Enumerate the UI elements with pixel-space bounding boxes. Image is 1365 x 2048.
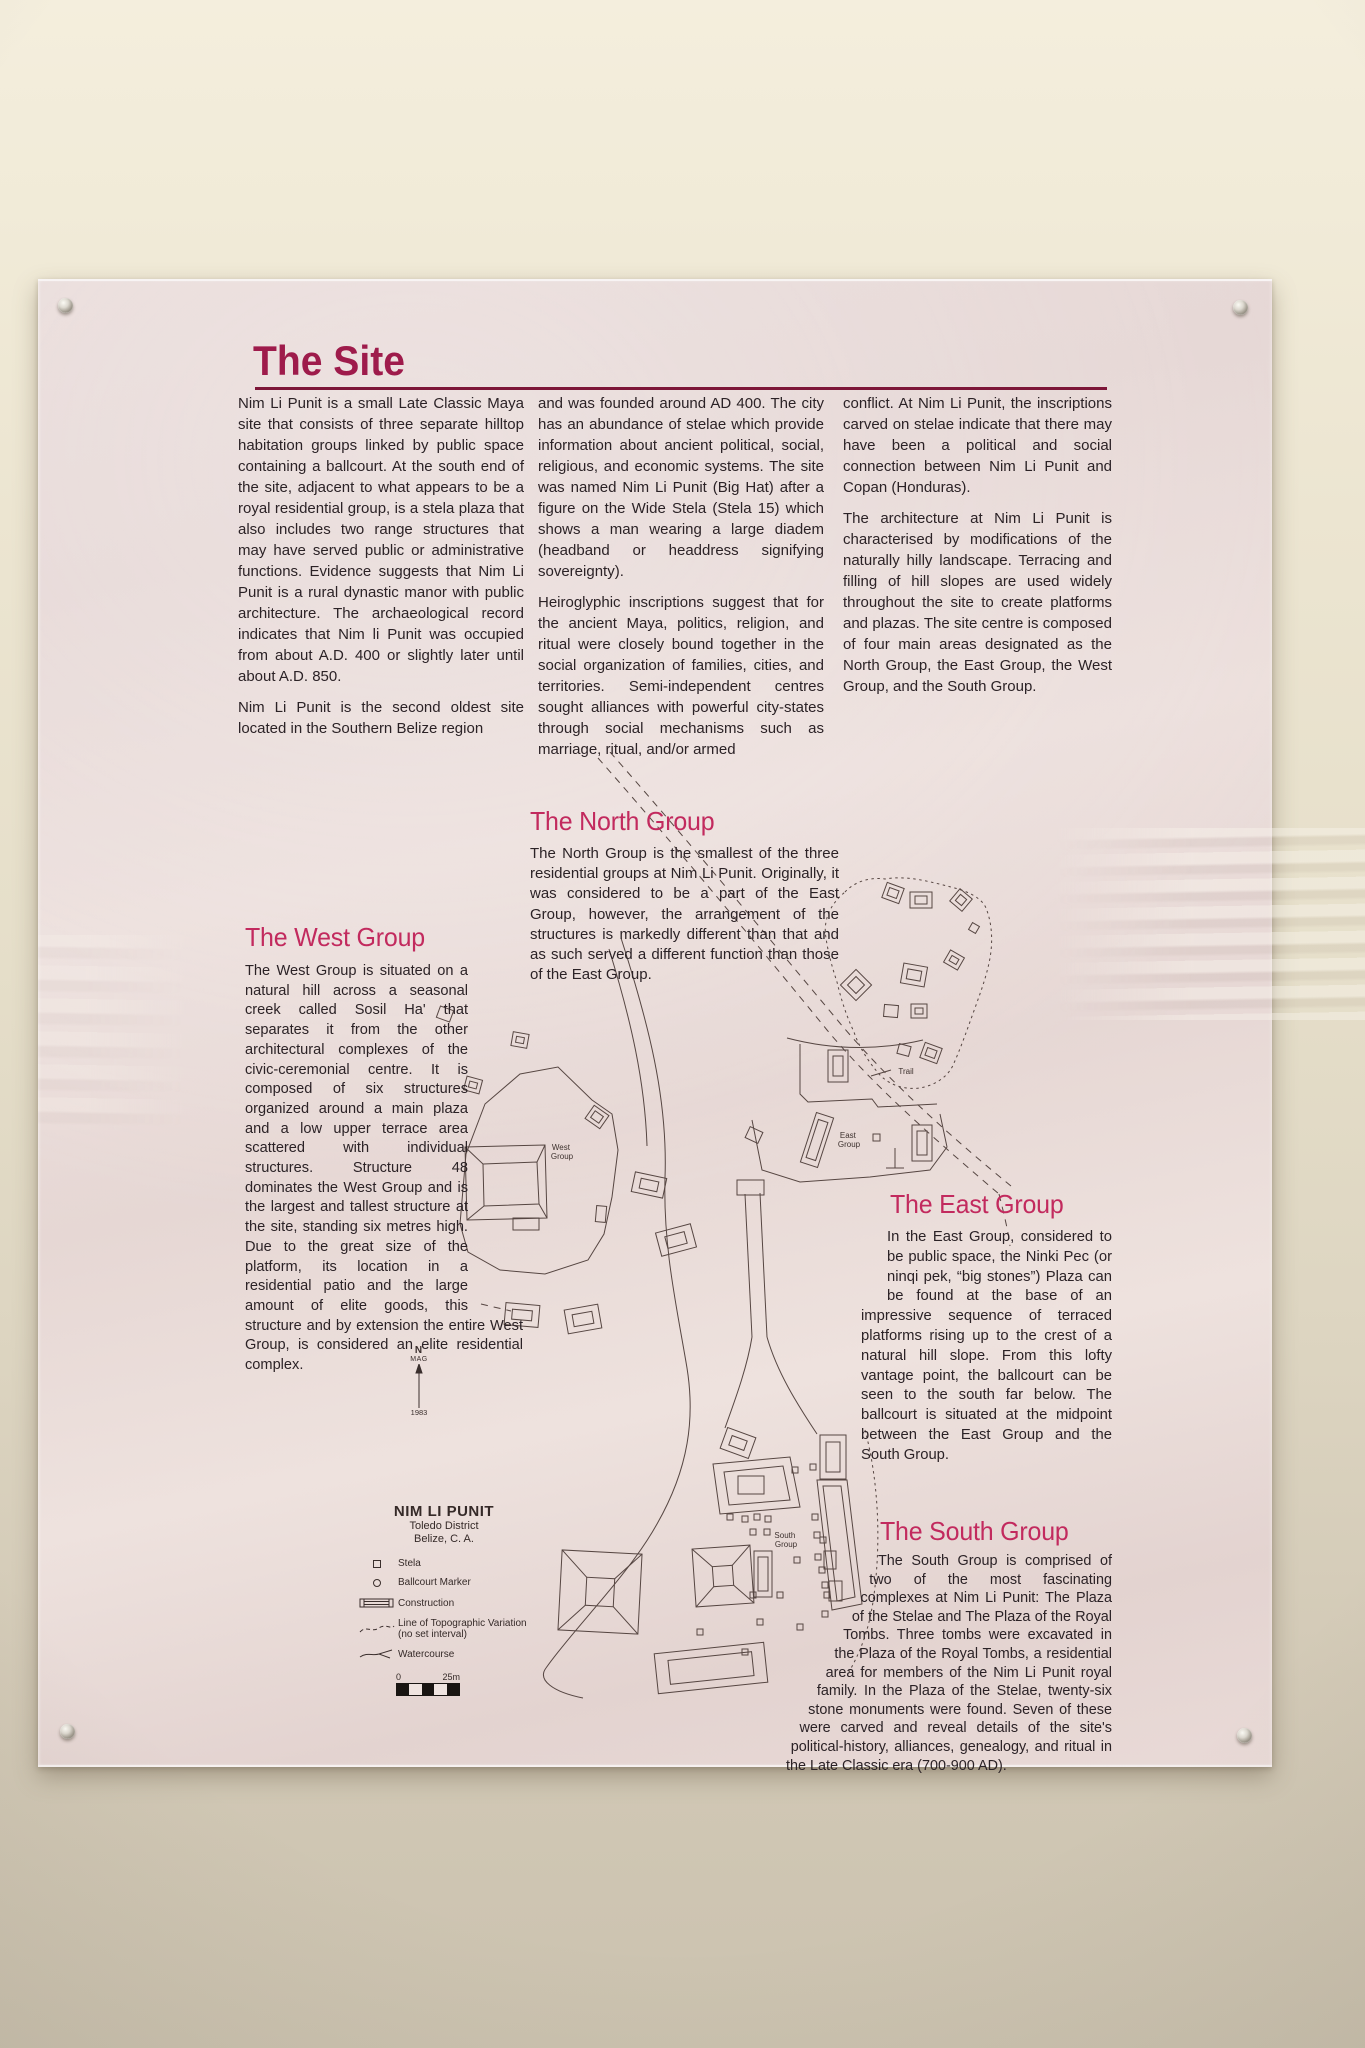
legend-row-watercourse: Watercourse: [356, 1648, 532, 1660]
legend-row-ballcourt-marker: Ballcourt Marker: [356, 1577, 532, 1588]
stela-square-icon: [356, 1559, 398, 1569]
mount-screw-bottom-right: [1237, 1728, 1252, 1743]
scale-end: 25m: [442, 1672, 460, 1682]
central-structures: [631, 1172, 696, 1256]
east-group-structures: [745, 1038, 947, 1182]
scale-bar-segments: [396, 1683, 460, 1696]
legend-label-line2: (no set interval): [398, 1629, 527, 1640]
east-group-text: In the East Group, considered to be publ…: [861, 1229, 1112, 1463]
east-group-paragraph: In the East Group, considered to be publ…: [861, 1228, 1112, 1466]
intro-col2-paragraph-1: and was founded around AD 400. The city …: [538, 393, 824, 582]
compass-year: 1983: [396, 1408, 442, 1417]
legend-items: Stela Ballcourt Marker: [356, 1558, 532, 1660]
legend-label: Construction: [398, 1598, 454, 1609]
legend-label-line1: Line of Topographic Variation: [398, 1618, 527, 1629]
intro-col1-paragraph-1: Nim Li Punit is a small Late Classic May…: [238, 393, 524, 687]
north-group-structures: [840, 882, 979, 1063]
scale-start: 0: [396, 1672, 401, 1682]
causeway-path: [725, 1180, 817, 1434]
trail-label-leader: [871, 1070, 891, 1076]
map-label-east-group: East Group: [838, 1131, 861, 1149]
legend-title: NIM LI PUNIT: [356, 1503, 532, 1520]
map-label-west-group: West Group: [551, 1143, 574, 1161]
intro-col2-paragraph-2: Heiroglyphic inscriptions suggest that f…: [538, 592, 824, 760]
compass-arrow-icon: [414, 1364, 424, 1408]
scale-numbers: 0 25m: [396, 1672, 460, 1682]
interpretive-panel: Trail: [38, 279, 1272, 1767]
legend-row-topographic-line: Line of Topographic Variation (no set in…: [356, 1618, 532, 1640]
intro-column-1: Nim Li Punit is a small Late Classic May…: [238, 393, 524, 749]
intro-col3-paragraph-2: The architecture at Nim Li Punit is char…: [843, 508, 1112, 697]
page-title: The Site: [253, 337, 405, 385]
map-compass: N MAG 1983: [396, 1345, 442, 1417]
south-group-paragraph: The South Group is comprised of two of t…: [786, 1552, 1112, 1775]
legend-row-construction: Construction: [356, 1596, 532, 1610]
intro-col1-paragraph-2: Nim Li Punit is the second oldest site l…: [238, 697, 524, 739]
legend-label: Stela: [398, 1558, 421, 1569]
legend-row-stela: Stela: [356, 1558, 532, 1569]
intro-column-3: conflict. At Nim Li Punit, the inscripti…: [843, 393, 1112, 707]
compass-mag-label: MAG: [396, 1356, 442, 1363]
map-scale-bar: 0 25m: [396, 1672, 460, 1696]
legend-label: Ballcourt Marker: [398, 1577, 471, 1588]
title-underline: [255, 387, 1107, 390]
intro-col3-paragraph-1: conflict. At Nim Li Punit, the inscripti…: [843, 393, 1112, 498]
map-label-south-group: South Group: [774, 1531, 797, 1549]
legend-label: Line of Topographic Variation (no set in…: [398, 1618, 527, 1640]
north-group-paragraph: The North Group is the smallest of the t…: [530, 844, 839, 985]
west-group-heading: The West Group: [245, 922, 425, 953]
mount-screw-top-left: [58, 298, 73, 313]
north-group-heading: The North Group: [530, 806, 714, 837]
north-group-text: The North Group is the smallest of the t…: [530, 845, 839, 983]
legend-district: Toledo District: [356, 1520, 532, 1533]
mount-screw-top-right: [1233, 300, 1248, 315]
construction-icon: [356, 1596, 398, 1610]
text-wrap-spacer: [861, 1228, 887, 1290]
topographic-line-icon: [356, 1623, 398, 1635]
map-label-trail: Trail: [898, 1067, 913, 1076]
ballcourt-marker-circle-icon: [356, 1578, 398, 1588]
text-wrap-spacer: [468, 962, 523, 1297]
intro-column-2: and was founded around AD 400. The city …: [538, 393, 824, 770]
watercourse-icon: [356, 1648, 398, 1660]
mount-screw-bottom-left: [60, 1724, 75, 1739]
map-legend: NIM LI PUNIT Toledo District Belize, C. …: [356, 1503, 532, 1696]
legend-label: Watercourse: [398, 1649, 454, 1660]
west-group-paragraph: The West Group is situated on a natural …: [245, 962, 523, 1376]
east-group-heading: The East Group: [890, 1189, 1064, 1220]
compass-north-label: N: [396, 1345, 442, 1356]
legend-country: Belize, C. A.: [356, 1533, 532, 1546]
south-group-heading: The South Group: [880, 1516, 1069, 1547]
